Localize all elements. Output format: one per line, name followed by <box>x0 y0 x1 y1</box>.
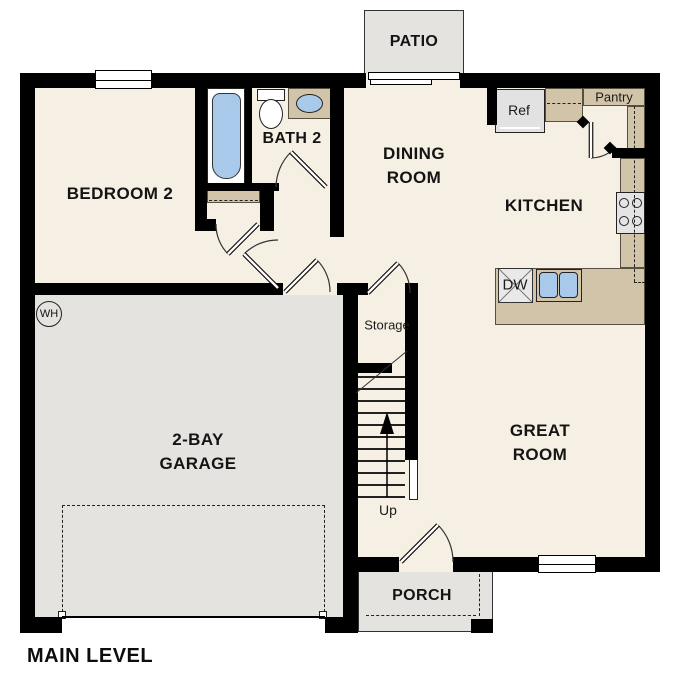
wall-segment <box>245 85 252 185</box>
porch-label: PORCH <box>392 584 452 608</box>
wall-segment <box>645 73 660 572</box>
water-heater-symbol: WH <box>36 301 62 327</box>
wall-segment <box>358 363 392 373</box>
garage-label: 2-BAYGARAGE <box>159 428 236 476</box>
toilet-bowl-icon <box>259 99 283 129</box>
stove-cooktop <box>616 192 645 234</box>
wall-segment <box>195 88 207 183</box>
stair-tread <box>358 460 405 462</box>
stair-tread <box>358 412 405 414</box>
refrigerator-label: Ref <box>508 102 530 118</box>
wall-segment <box>405 283 418 460</box>
dining-room-label: DININGROOM <box>383 142 445 190</box>
stair-up-label: Up <box>379 502 397 518</box>
bath-sink-icon <box>296 94 323 113</box>
burner-icon <box>619 198 629 208</box>
garage-opening-line <box>62 616 325 618</box>
page-title: MAIN LEVEL <box>27 645 153 668</box>
water-heater-label: WH <box>40 308 58 320</box>
patio-label: PATIO <box>390 30 439 54</box>
stair-tread <box>358 496 405 498</box>
sliding-door-panel <box>370 79 432 85</box>
wall-segment <box>612 148 645 158</box>
dishwasher-label: DW <box>503 277 528 294</box>
bathtub-icon <box>212 93 241 179</box>
stair-tread <box>358 484 405 486</box>
wall-segment <box>453 557 538 572</box>
stair-tread <box>358 424 405 426</box>
bath-2-label: BATH 2 <box>263 127 322 151</box>
front-door-opening <box>399 557 453 572</box>
floor-plan: WH <box>0 0 687 687</box>
wall-segment <box>343 283 358 633</box>
refrigerator-handle <box>500 127 540 129</box>
kitchen-sink <box>536 269 582 302</box>
wall-segment <box>330 75 344 237</box>
upper-cabinet-dashed-line-end <box>634 282 645 283</box>
wall-segment <box>325 617 343 633</box>
pantry-label: Pantry <box>595 90 633 105</box>
window <box>95 70 152 89</box>
wall-segment <box>460 73 660 88</box>
wall-segment <box>20 73 35 633</box>
stair-tread <box>358 448 405 450</box>
counter-beside-ref <box>545 88 583 122</box>
storage-label: Storage <box>364 318 410 333</box>
bedroom-2-label: BEDROOM 2 <box>67 182 174 206</box>
wall-segment <box>20 73 366 88</box>
wall-segment <box>596 557 660 572</box>
kitchen-label: KITCHEN <box>505 194 583 218</box>
stair-tread <box>358 376 405 378</box>
garage-door-outline <box>62 505 325 617</box>
upper-cabinet-dashed-line-vertical <box>634 106 635 282</box>
upper-cabinet-dashed-line <box>547 103 581 104</box>
great-room-label: GREATROOM <box>510 419 570 467</box>
stair-tread <box>358 388 405 390</box>
stair-tread <box>358 472 405 474</box>
wall-segment <box>207 219 216 231</box>
pantry-wall-right <box>627 106 645 150</box>
stair-tread <box>358 400 405 402</box>
wall-segment <box>195 183 207 231</box>
porch-dashed-line-vertical <box>479 574 480 616</box>
wall-segment <box>487 88 497 125</box>
wall-segment <box>20 617 62 633</box>
window <box>538 555 596 573</box>
burner-icon <box>619 216 629 226</box>
wall-segment <box>20 283 283 295</box>
wall-segment <box>260 183 274 231</box>
stair-tread <box>358 436 405 438</box>
closet-rod-dashed-line <box>209 200 258 201</box>
wall-segment <box>358 557 399 572</box>
porch-dashed-line-horizontal <box>366 615 476 616</box>
sink-basin-icon <box>559 272 578 298</box>
sink-basin-icon <box>539 272 558 298</box>
wall-segment <box>471 619 493 633</box>
